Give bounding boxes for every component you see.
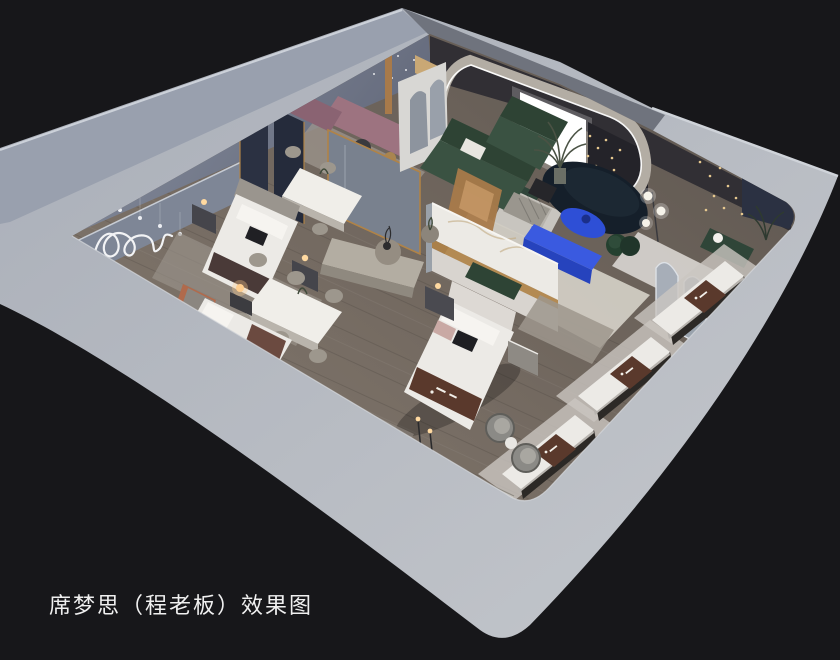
floor-lamp-glow: [416, 417, 421, 422]
green-velvet-chair-seat: [609, 236, 622, 249]
nightstand-lamp-glow: [302, 255, 308, 261]
white-pillow: [713, 233, 723, 243]
dark-green-chair: [620, 236, 640, 256]
render-page: 席梦思（程老板）效果图: [0, 0, 840, 660]
table-lamp-glow: [236, 284, 244, 292]
table-decor-object: [582, 215, 591, 224]
nightstand-lamp-glow: [201, 199, 207, 205]
side-table-white: [505, 437, 517, 449]
side-table-plant: [421, 225, 439, 243]
caption-title: 席梦思（程老板）效果图: [49, 588, 313, 620]
nightstand-lamp-glow: [435, 283, 441, 289]
render-canvas: [0, 0, 840, 660]
floor-lamp-glow: [428, 429, 433, 434]
